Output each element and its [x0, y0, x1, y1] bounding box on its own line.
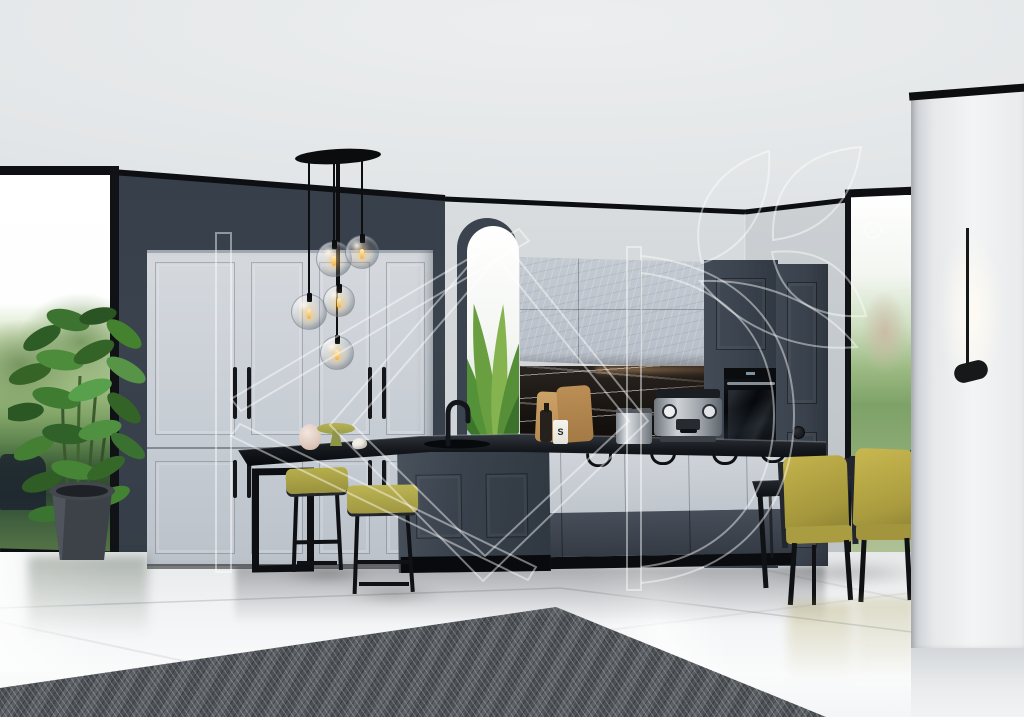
- chair-leg: [812, 545, 816, 605]
- drip-tray: [660, 436, 716, 442]
- lower-door-seam: [689, 511, 691, 555]
- upper-cabinet-gap: [520, 309, 706, 310]
- wall-lamp-rod: [966, 228, 969, 374]
- glass-globe-pendant: [345, 235, 379, 269]
- potted-plant: [8, 290, 158, 580]
- pendant-cord: [361, 157, 363, 236]
- chair-backrest: [783, 455, 850, 531]
- sugar-jar: S: [553, 420, 568, 444]
- oil-bottle-neck: [544, 403, 549, 412]
- bulb-socket: [335, 335, 340, 344]
- bulb-socket: [307, 293, 312, 302]
- stool-rail: [297, 561, 337, 565]
- bulb-filament: [307, 309, 311, 319]
- chair-reflection: [788, 602, 852, 680]
- portafilter-handle: [680, 429, 697, 433]
- stool-seat: [286, 467, 349, 494]
- pendant-cord: [308, 158, 310, 295]
- bulb-filament: [337, 298, 341, 308]
- pot-lid-knob: [630, 403, 638, 409]
- upper-cabinets: [520, 257, 706, 369]
- kitchen-render: S: [0, 0, 1024, 717]
- tall-cabinet-upper-door: [708, 266, 774, 362]
- espresso-machine: [654, 389, 722, 445]
- bulb-filament: [360, 249, 364, 259]
- bulb-filament: [332, 256, 336, 266]
- chair-seat: [786, 525, 853, 544]
- oven-handle: [727, 382, 775, 385]
- lower-door-seam: [561, 513, 563, 557]
- stool-shadow: [344, 586, 444, 602]
- stool-rail: [296, 540, 338, 545]
- bulb-filament: [335, 350, 339, 360]
- white-column: [909, 72, 1024, 717]
- island-plinth: [401, 555, 551, 573]
- steel-pot: [616, 408, 652, 444]
- column-floor-reflection: [911, 648, 1024, 717]
- oven-display: [746, 372, 755, 375]
- espresso-gauge: [702, 404, 717, 419]
- bulb-socket: [360, 234, 365, 243]
- bulb-socket: [337, 284, 342, 293]
- glass-globe-pendant: [320, 336, 354, 370]
- upper-cabinet-seam: [578, 257, 579, 367]
- chair-reflection: [856, 598, 916, 678]
- stool-seat: [347, 484, 418, 513]
- oil-bottle: [540, 410, 552, 442]
- glass-globe-pendant: [291, 294, 327, 330]
- plant-pot: [49, 482, 115, 560]
- chair-backrest: [853, 448, 916, 528]
- bulb-socket: [332, 240, 337, 249]
- sugar-jar-label: S: [557, 428, 563, 437]
- pendant-cord: [333, 160, 335, 242]
- island-panel: [477, 461, 536, 550]
- stool-rail: [357, 560, 409, 564]
- stool-rail: [359, 582, 409, 586]
- glass-globe-pendant: [323, 285, 355, 317]
- espresso-dial: [662, 404, 677, 419]
